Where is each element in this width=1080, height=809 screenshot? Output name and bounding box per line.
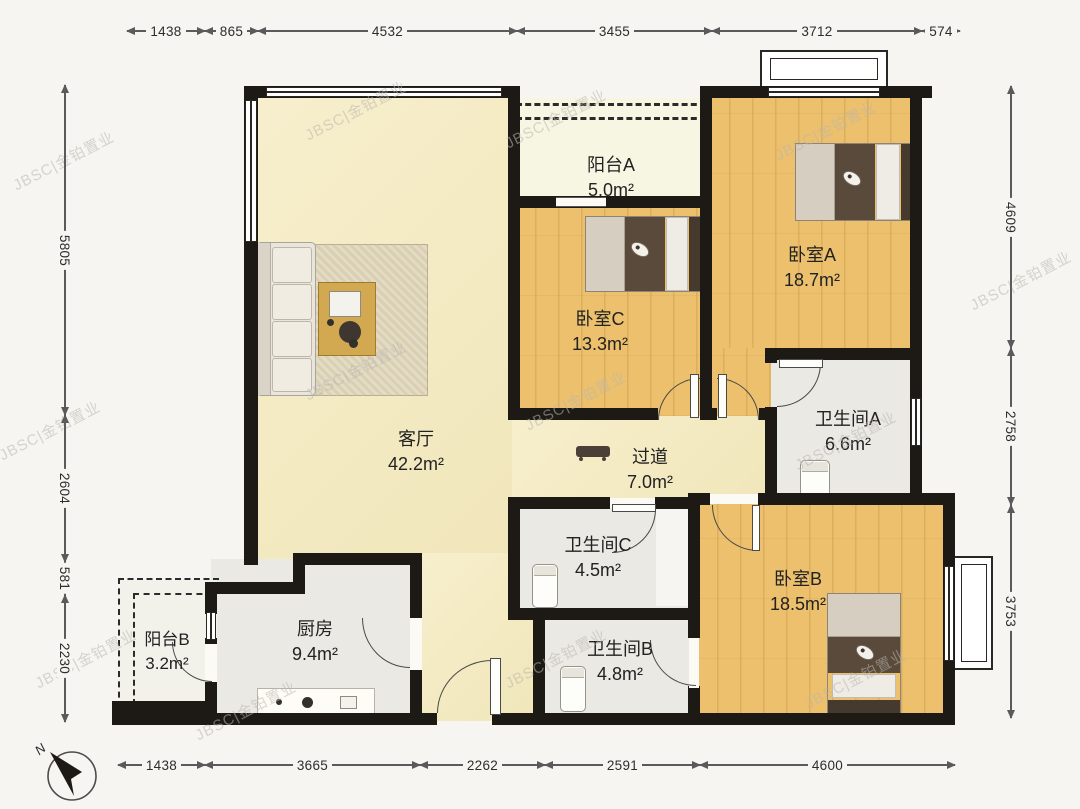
- wall-segment: [508, 497, 610, 509]
- hall-bench-leg: [602, 457, 606, 461]
- room-area: 3.2m²: [144, 652, 189, 676]
- hall-bench-icon: [576, 446, 610, 457]
- room-area: 18.5m²: [770, 592, 826, 617]
- compass-needle-icon: [50, 752, 82, 796]
- wall-segment: [205, 582, 305, 594]
- wall-segment: [508, 497, 520, 620]
- sofa-cushion: [272, 358, 312, 392]
- room-area: 9.4m²: [292, 642, 338, 667]
- bath-c-door-leaf: [612, 504, 656, 512]
- wall-segment: [492, 713, 955, 725]
- dim-value: 4600: [808, 758, 847, 773]
- toilet-bath-c: [532, 564, 558, 608]
- bedroom-b-window: [944, 566, 954, 661]
- room-name: 卫生间A: [815, 407, 881, 432]
- bedroom-b-door-leaf: [752, 505, 760, 551]
- room-label-balcony-b: 阳台B 3.2m²: [144, 628, 189, 676]
- dim-left-581: 581: [56, 562, 74, 595]
- kitchen-counter: [257, 688, 375, 715]
- dim-top-4532: 4532: [258, 22, 517, 40]
- cup: [349, 339, 358, 348]
- coffee-table: [318, 282, 376, 356]
- dim-bottom-1438: 1438: [118, 756, 205, 774]
- room-name: 厨房: [292, 617, 338, 642]
- dim-value: 2262: [463, 758, 502, 773]
- wall-segment: [508, 408, 658, 420]
- room-name: 卧室B: [770, 567, 826, 592]
- bedroom-a-door-leaf: [718, 374, 727, 418]
- dim-left-2604: 2604: [56, 415, 74, 562]
- bed-bedroom-b: [827, 593, 901, 719]
- room-label-bath-c: 卫生间C 4.5m²: [565, 533, 632, 583]
- wall-segment: [205, 713, 437, 725]
- compass-north-label: N: [32, 740, 49, 758]
- sink: [340, 696, 357, 709]
- bath-a-window: [911, 398, 921, 446]
- dim-value: 2591: [603, 758, 642, 773]
- bed-bedroom-c: [585, 216, 703, 292]
- room-name: 卫生间B: [587, 637, 653, 662]
- dim-top-865: 865: [205, 22, 258, 40]
- living-top-window: [266, 87, 502, 97]
- dim-value: 2604: [58, 469, 73, 508]
- wall-segment: [293, 553, 422, 565]
- dim-left-2230: 2230: [56, 595, 74, 722]
- room-area: 6.6m²: [815, 432, 881, 457]
- wall-segment: [700, 408, 717, 420]
- dim-value: 865: [216, 24, 247, 39]
- dim-value: 3712: [797, 24, 836, 39]
- kitchen-window: [206, 612, 216, 640]
- dim-bottom-4600: 4600: [700, 756, 955, 774]
- room-name: 过道: [627, 445, 673, 470]
- dim-value: 3665: [293, 758, 332, 773]
- bed-bedroom-a: [795, 143, 915, 221]
- hall-bench-leg: [579, 457, 583, 461]
- room-area: 4.5m²: [565, 558, 632, 583]
- wall-segment: [508, 86, 520, 420]
- dim-value: 574: [925, 24, 956, 39]
- dim-bottom-3665: 3665: [205, 756, 420, 774]
- sofa-cushion: [272, 247, 312, 283]
- wall-segment: [410, 670, 422, 715]
- balcony-a-open-edge: [516, 117, 706, 120]
- bed-pillows: [832, 674, 896, 698]
- compass: N: [28, 736, 116, 806]
- bedroom-c-door-leaf: [690, 374, 699, 418]
- wall-segment: [758, 493, 768, 505]
- room-name: 客厅: [388, 427, 444, 452]
- dim-left-5805: 5805: [56, 85, 74, 415]
- bed-pillows: [876, 144, 900, 220]
- bedroom-b-bay-window-inner: [961, 564, 987, 662]
- dim-value: 2758: [1004, 407, 1019, 446]
- dim-value: 581: [58, 563, 73, 594]
- cup: [327, 319, 334, 326]
- room-label-bath-a: 卫生间A 6.6m²: [815, 407, 881, 457]
- wall-segment: [759, 408, 777, 420]
- dim-value: 4609: [1004, 197, 1019, 236]
- dim-bottom-2262: 2262: [420, 756, 545, 774]
- wall-segment: [112, 701, 217, 725]
- wall-segment: [205, 594, 217, 614]
- dim-value: 3455: [595, 24, 634, 39]
- bedroom-a-bay-window-inner: [770, 58, 878, 80]
- bath-a-door-leaf: [779, 359, 823, 368]
- dim-value: 5805: [58, 230, 73, 269]
- floorplan-canvas: 阳台A 5.0m² 卧室A 18.7m² 卧室C 13.3m² 客厅 42.2m…: [0, 0, 1080, 809]
- room-label-hallway: 过道 7.0m²: [627, 445, 673, 495]
- sofa-back: [257, 243, 271, 395]
- room-name: 阳台B: [144, 628, 189, 652]
- dim-top-3712: 3712: [712, 22, 922, 40]
- room-area: 5.0m²: [587, 178, 635, 203]
- room-bedroom-a-floor: [706, 92, 918, 354]
- watermark: JBSC|金铂置业: [0, 396, 104, 465]
- room-label-bath-b: 卫生间B 4.8m²: [587, 637, 653, 687]
- room-label-balcony-a: 阳台A 5.0m²: [587, 153, 635, 203]
- entry-door-leaf: [490, 658, 501, 715]
- tray: [329, 291, 361, 317]
- room-name: 卧室A: [784, 243, 840, 268]
- wall-segment: [765, 407, 777, 505]
- wall-segment: [533, 608, 545, 725]
- sofa-cushion: [272, 284, 312, 320]
- stove-burner: [302, 697, 313, 708]
- wall-segment: [765, 493, 955, 505]
- dim-value: 4532: [368, 24, 407, 39]
- room-area: 7.0m²: [627, 470, 673, 495]
- dim-right-2758: 2758: [1002, 348, 1020, 505]
- stove-burner: [276, 699, 282, 705]
- dim-top-574: 574: [922, 22, 960, 40]
- room-area: 4.8m²: [587, 662, 653, 687]
- wall-segment: [910, 86, 922, 360]
- sofa-cushion: [272, 321, 312, 357]
- wall-segment: [765, 348, 777, 363]
- bedroom-a-window: [768, 87, 880, 97]
- kitchen-door-opening: [410, 618, 422, 670]
- room-name: 卫生间C: [565, 533, 632, 558]
- toilet-bath-b: [560, 666, 586, 712]
- dim-value: 1438: [142, 758, 181, 773]
- room-label-bedroom-a: 卧室A 18.7m²: [784, 243, 840, 293]
- dim-right-4609: 4609: [1002, 86, 1020, 348]
- bed-foot: [828, 594, 900, 637]
- room-name: 卧室C: [572, 307, 628, 332]
- dim-value: 3753: [1004, 592, 1019, 631]
- dim-bottom-2591: 2591: [545, 756, 700, 774]
- room-name: 阳台A: [587, 153, 635, 178]
- dim-value: 1438: [146, 24, 185, 39]
- room-area: 18.7m²: [784, 268, 840, 293]
- dim-right-3753: 3753: [1002, 505, 1020, 718]
- bed-pillows: [666, 217, 688, 291]
- room-area: 13.3m²: [572, 332, 628, 357]
- bedroom-b-door-opening: [710, 494, 758, 504]
- living-left-window: [245, 100, 257, 242]
- room-label-bedroom-b: 卧室B 18.5m²: [770, 567, 826, 617]
- room-label-bedroom-c: 卧室C 13.3m²: [572, 307, 628, 357]
- wall-segment: [700, 86, 712, 420]
- dim-top-1438: 1438: [127, 22, 205, 40]
- sofa: [256, 242, 316, 396]
- wall-segment: [688, 493, 700, 638]
- room-label-kitchen: 厨房 9.4m²: [292, 617, 338, 667]
- watermark: JBSC|金铂置业: [966, 246, 1075, 315]
- balcony-a-open-edge: [516, 103, 706, 106]
- room-area: 42.2m²: [388, 452, 444, 477]
- bed-foot: [796, 144, 835, 220]
- bed-foot: [586, 217, 625, 291]
- dim-top-3455: 3455: [517, 22, 712, 40]
- dim-value: 2230: [58, 639, 73, 678]
- room-label-living: 客厅 42.2m²: [388, 427, 444, 477]
- wall-segment: [410, 565, 422, 618]
